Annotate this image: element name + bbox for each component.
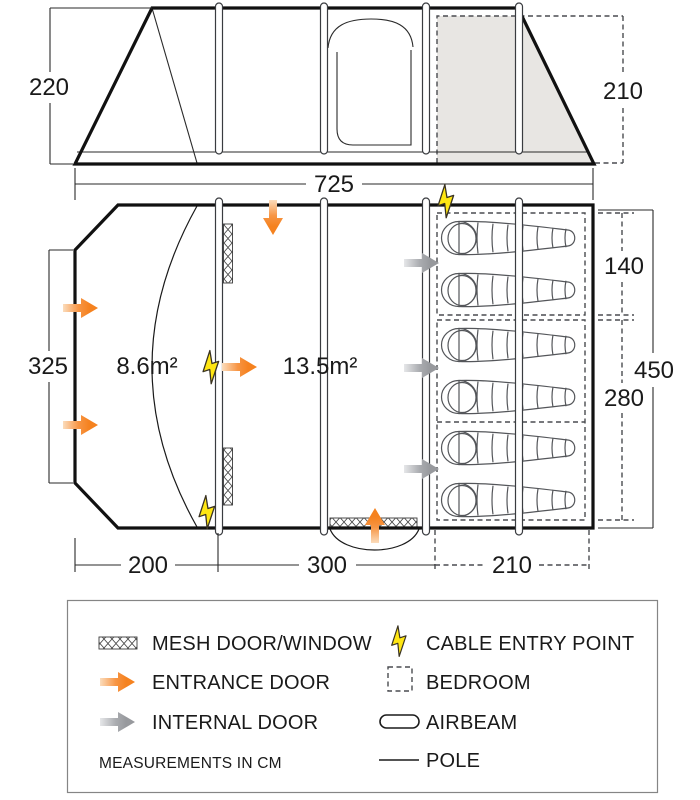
legend-bedroom-label: BEDROOM	[426, 672, 531, 694]
dim-label-300: 300	[307, 552, 347, 579]
pole-icon	[216, 3, 223, 154]
dim-bedroom-rear: 280	[598, 320, 644, 520]
mesh-window-icon	[224, 448, 233, 505]
dim-label-220: 220	[29, 74, 69, 101]
elevation-seam-line	[152, 8, 197, 163]
dim-label-725: 725	[314, 171, 354, 198]
airbeam-icon	[380, 715, 419, 728]
diagram-canvas: 220 210 725	[0, 0, 700, 800]
mesh-window-icon	[224, 224, 233, 283]
mesh-swatch-icon	[99, 637, 137, 649]
pole-icon	[321, 3, 328, 154]
legend-cable-label: CABLE ENTRY POINT	[426, 633, 634, 655]
tent-floorplan-diagram: 220 210 725	[0, 0, 700, 800]
dim-label-450: 450	[634, 357, 674, 384]
pole-icon	[516, 198, 523, 535]
legend-entrance-label: ENTRANCE DOOR	[152, 672, 330, 694]
dim-total-width: 725	[75, 168, 593, 200]
dim-bottom-sections: 200 300 210	[75, 530, 589, 579]
porch-area-label: 8.6m²	[116, 353, 177, 380]
pole-icon	[516, 3, 523, 154]
legend-note: MEASUREMENTS IN CM	[99, 755, 282, 772]
dim-elevation-left-height: 220	[29, 8, 152, 164]
elevation-door-window	[328, 19, 413, 145]
living-area-label: 13.5m²	[283, 353, 358, 380]
dim-label-210-length: 210	[492, 552, 532, 579]
legend-mesh-label: MESH DOOR/WINDOW	[152, 633, 372, 655]
floor-plan-view: 8.6m² 13.5m² 325 140 280 450 200	[28, 183, 674, 579]
dim-label-200: 200	[128, 552, 168, 579]
side-elevation-view: 220 210 725	[29, 3, 643, 200]
dim-left-depth: 325	[28, 250, 73, 483]
dim-label-140: 140	[604, 253, 644, 280]
legend-pole-label: POLE	[426, 750, 480, 772]
legend-internal-label: INTERNAL DOOR	[152, 712, 318, 734]
dim-label-280: 280	[604, 385, 644, 412]
dim-bedroom-front: 140	[598, 213, 644, 320]
dim-label-210-height: 210	[603, 78, 643, 105]
dim-label-325: 325	[28, 353, 68, 380]
pole-icon	[423, 3, 430, 154]
legend-airbeam-label: AIRBEAM	[426, 712, 517, 734]
legend: MESH DOOR/WINDOW ENTRANCE DOOR INTERNAL …	[68, 601, 658, 793]
